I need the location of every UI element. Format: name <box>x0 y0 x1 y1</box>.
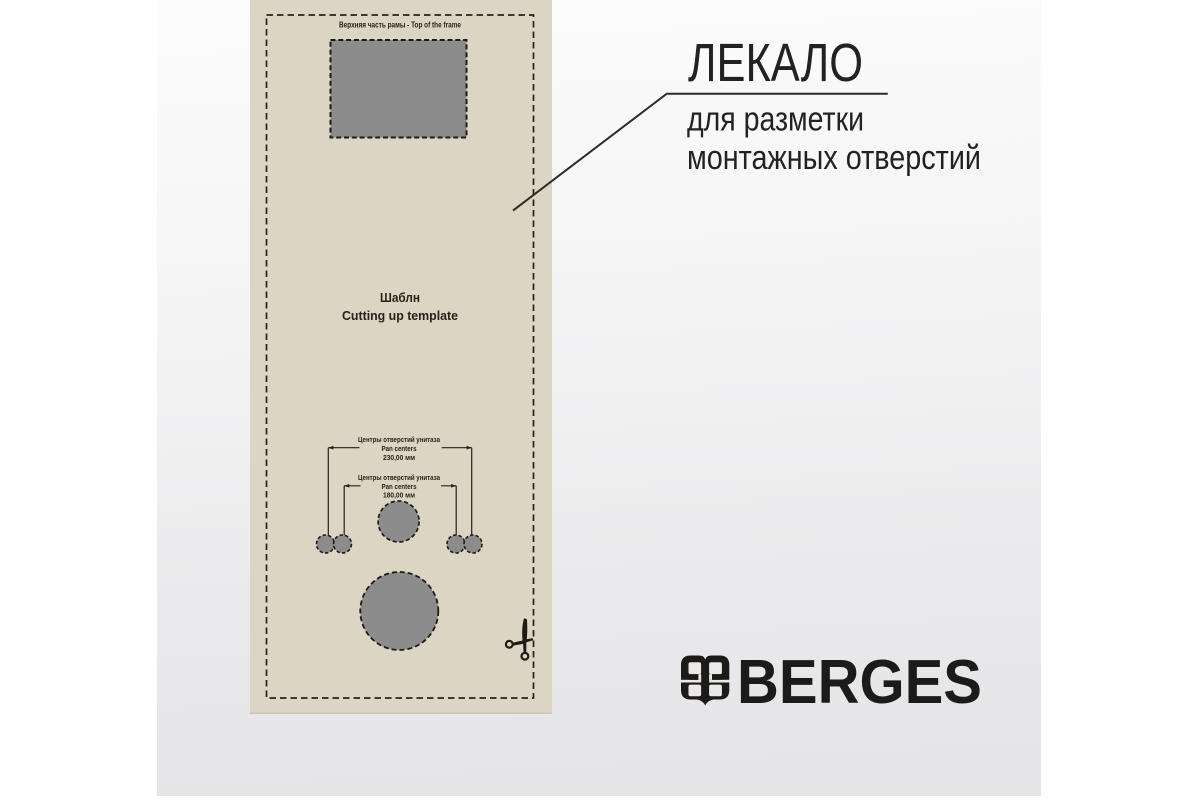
svg-text:180,00 мм: 180,00 мм <box>383 493 415 500</box>
svg-text:Шаблн: Шаблн <box>380 290 420 305</box>
svg-text:Центры отверстий унитаза: Центры отверстий унитаза <box>358 436 440 444</box>
svg-text:Pan centers: Pan centers <box>382 484 417 491</box>
svg-text:ЛЕКАЛО: ЛЕКАЛО <box>688 33 863 93</box>
svg-text:230,00 мм: 230,00 мм <box>383 455 415 462</box>
svg-text:Cutting up template: Cutting up template <box>342 308 458 323</box>
svg-text:BERGES: BERGES <box>737 648 982 717</box>
svg-text:монтажных отверстий: монтажных отверстий <box>687 139 981 177</box>
svg-text:Центры отверстий унитаза: Центры отверстий унитаза <box>358 474 440 482</box>
svg-text:для разметки: для разметки <box>687 101 864 139</box>
svg-text:Верхняя часть рамы - Top of th: Верхняя часть рамы - Top of the frame <box>339 21 461 30</box>
svg-text:Pan centers: Pan centers <box>382 446 417 453</box>
